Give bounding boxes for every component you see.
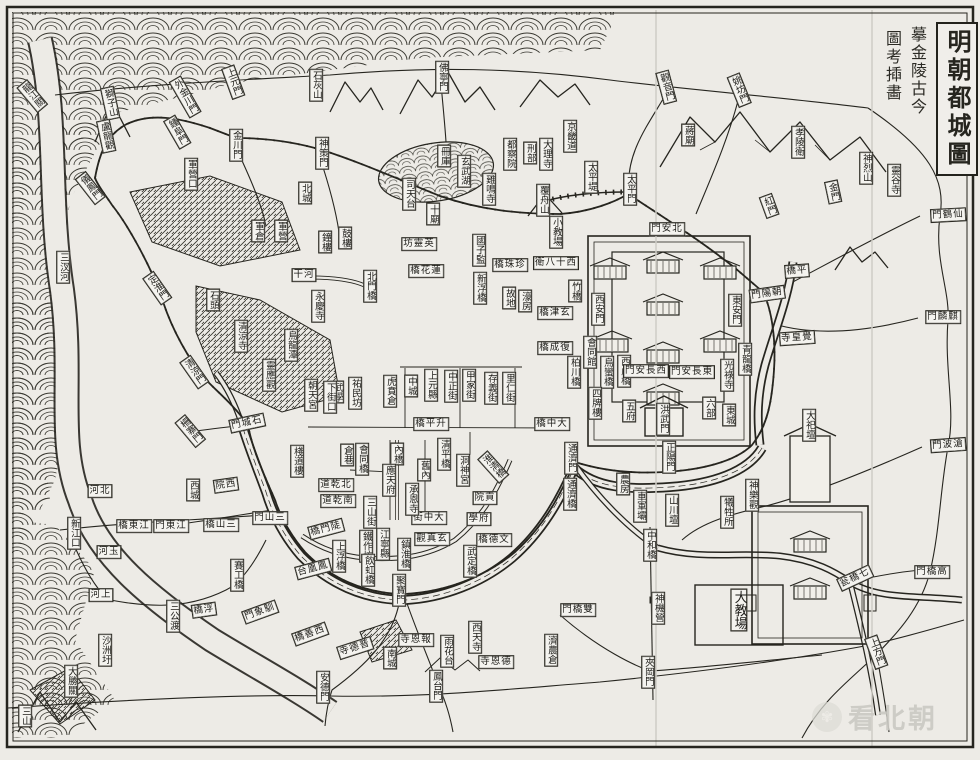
- map-label: 神樂觀: [745, 479, 759, 512]
- map-label: 存義街: [484, 372, 498, 405]
- map-label: 河玉: [96, 545, 121, 559]
- map-label: 中正街: [444, 370, 458, 403]
- map-label: 農房: [616, 473, 630, 496]
- map-label: 門橋雙: [560, 603, 596, 617]
- map-label: 學府: [466, 512, 491, 526]
- map-label: 三山: [18, 705, 32, 728]
- map-title-note-left: 圖考揷畵: [880, 30, 904, 130]
- map-label: 濠房: [518, 290, 532, 313]
- map-label: 觀音門: [655, 70, 677, 105]
- map-label: 門山三: [252, 511, 288, 525]
- map-label: 洪武門: [656, 403, 670, 436]
- map-label: 道乾北: [318, 478, 354, 492]
- map-label: 橋門陡: [307, 518, 345, 540]
- watermark-logo-icon: ✾: [812, 702, 842, 732]
- map-label: 京畿道: [563, 120, 577, 153]
- map-label: 神策門: [315, 137, 329, 170]
- map-label: 軍營口: [184, 158, 198, 191]
- map-label: 門波滄: [930, 437, 966, 453]
- map-label: 東安門: [728, 294, 742, 327]
- map-label: 大祀壇: [802, 409, 816, 442]
- map-label: 橋平: [784, 263, 810, 278]
- map-label: 門象馴: [241, 599, 279, 624]
- map-label: 飲虹橋: [361, 554, 375, 587]
- map-label: 司天台: [402, 178, 416, 211]
- map-label: 橋花蓮: [408, 264, 444, 278]
- map-label: 江寧縣: [376, 528, 390, 561]
- map-label: 橋東江: [116, 519, 152, 533]
- map-label: 橋中大: [534, 417, 570, 431]
- map-label: 應天府: [382, 464, 396, 497]
- map-label: 西天寺: [468, 621, 482, 654]
- map-label: 橋山三: [203, 518, 239, 532]
- map-label: 四牌樓: [588, 387, 602, 420]
- map-label: 門安長西: [623, 364, 669, 378]
- map-label: 上元縣: [424, 369, 438, 402]
- map-label: 靈應觀: [262, 359, 276, 392]
- map-label: 寺恩報: [398, 633, 434, 647]
- map-label: 中和橋: [643, 529, 657, 562]
- map-label: 小教場: [549, 216, 563, 249]
- map-label: 沙洲圩: [98, 634, 112, 667]
- map-label: 正陽門: [662, 441, 676, 474]
- map-label: 蔣廟: [681, 124, 695, 147]
- map-label: 門麟麒: [925, 310, 961, 324]
- map-label: 瓮橋七: [836, 564, 874, 591]
- map-label: 會同館: [583, 336, 597, 369]
- map-label: 衛八十西: [533, 256, 579, 270]
- map-label: 安德門: [316, 671, 330, 704]
- map-label: 冊庫: [437, 145, 451, 168]
- map-label: 朝天宮: [304, 379, 318, 412]
- map-label: 門鶴仙: [930, 207, 966, 223]
- map-label: 北城: [298, 182, 312, 205]
- map-label: 上浮橋: [332, 540, 346, 573]
- map-label: 軍營: [274, 220, 288, 243]
- map-label: 橋珠珍: [492, 258, 528, 272]
- map-label: 祐民坊: [348, 377, 362, 410]
- map-label: 門城石: [228, 413, 266, 434]
- map-label: 刑部: [523, 142, 537, 165]
- map-label: 國子監: [472, 234, 486, 267]
- map-label: 上元門: [221, 64, 245, 99]
- map-label: 鳳台門: [429, 670, 443, 703]
- map-label: 柵寨門: [174, 414, 205, 448]
- map-label: 柏川橋: [567, 356, 581, 389]
- map-title-note-right: 摹金陵古今: [905, 26, 929, 146]
- map-label: 清涼寺: [234, 320, 248, 353]
- map-label: 靈谷寺: [887, 164, 901, 197]
- map-label: 倉巷: [340, 444, 354, 467]
- map-label: 門橋高: [914, 565, 950, 579]
- map-label: 賽工橋: [230, 559, 244, 592]
- map-label: 神機營: [651, 592, 665, 625]
- map-label: 門東江: [153, 519, 189, 533]
- map-label: 寺恩德: [478, 655, 514, 669]
- map-label: 軍倉: [251, 220, 265, 243]
- map-label: 洞神宮: [456, 454, 470, 487]
- map-label: 會同橋: [355, 443, 369, 476]
- map-label: 鼓樓: [338, 227, 352, 250]
- map-label: 大勝關: [64, 665, 78, 698]
- map-label: 聚寶門: [392, 574, 406, 607]
- map-label: 十廟: [426, 203, 440, 226]
- map-label: 三汊河: [56, 251, 70, 284]
- map-label: 烏蠻橋: [600, 356, 614, 389]
- map-label: 金川門: [229, 129, 243, 162]
- map-label: 佛寧門: [435, 61, 449, 94]
- map-label: 河上: [88, 588, 113, 602]
- map-label: 定淮門: [142, 271, 172, 305]
- map-label: 門安北: [649, 222, 685, 236]
- map-label: 下街口: [323, 381, 337, 414]
- map-label: 淮清橋: [477, 450, 509, 483]
- map-label: 通濟門: [564, 442, 578, 475]
- map-label: 大理寺: [539, 138, 553, 171]
- map-label: 濟農倉: [544, 634, 558, 667]
- map-label: 棧道樓: [290, 445, 304, 478]
- map-label: 寺德普: [336, 636, 374, 660]
- map-label: 新浮橋: [473, 272, 487, 305]
- map-label: 儀鳳門: [75, 171, 106, 205]
- map-label: 五府: [622, 400, 636, 423]
- map-label: 觀真玄: [414, 532, 450, 546]
- map-label: 都察院: [503, 138, 517, 171]
- map-label: 神烈山: [859, 152, 873, 185]
- map-label: 竹橋: [568, 280, 582, 303]
- map-label: 烏龍潭: [284, 329, 298, 362]
- map-label: 三山街: [363, 496, 377, 529]
- map-label: 東城: [722, 404, 736, 427]
- map-label: 橋德文: [476, 533, 512, 547]
- map-label: 門陽朝: [748, 285, 785, 303]
- map-label: 永慶寺: [311, 290, 325, 323]
- map-label: 橋平升: [413, 417, 449, 431]
- map-label: 太平門: [623, 173, 637, 206]
- map-label: 石頭: [206, 289, 220, 312]
- map-label: 里仁街: [502, 372, 516, 405]
- map-label: 三公渡: [166, 600, 180, 633]
- map-label: 干河: [291, 268, 316, 282]
- map-label: 武定橋: [463, 545, 477, 578]
- map-label: 石灰山: [309, 69, 323, 102]
- map-label: 夾岡門: [641, 656, 655, 689]
- map-label: 橋成復: [537, 341, 573, 355]
- map-label: 紅門: [759, 193, 780, 219]
- historic-map-page: 龍江關獅子山盧龍觀外金川門鍾阜門儀鳳門上元門金川門軍營口石灰山神策門佛寧門觀音門…: [0, 0, 980, 760]
- map-label: 金門: [824, 179, 842, 204]
- map-label: 大教場: [730, 589, 747, 632]
- map-label: 橋津玄: [537, 306, 573, 320]
- map-label: 內橋: [390, 443, 404, 466]
- map-label: 橋善西: [291, 621, 329, 646]
- map-label: 鎮淮橋: [397, 538, 411, 571]
- map-label: 河北: [87, 484, 112, 498]
- map-label: 台凰鳳: [294, 558, 332, 580]
- map-label: 院西: [213, 476, 240, 493]
- map-label: 西城: [186, 479, 200, 502]
- map-label: 通濟橋: [563, 478, 577, 511]
- watermark-text: 看北朝: [848, 697, 938, 736]
- map-label: 太平堤: [584, 161, 598, 194]
- map-label: 故地: [502, 287, 516, 310]
- map-label: 覆舟山: [536, 184, 550, 217]
- map-label: 寺皇覺: [779, 330, 815, 346]
- map-label: 舊內: [417, 459, 431, 482]
- map-title: 明朝都城圖: [936, 22, 978, 176]
- map-label: 清平橋: [437, 438, 451, 471]
- map-label: 道乾南: [320, 494, 356, 508]
- map-label: 虎賁倉: [383, 375, 397, 408]
- map-labels-layer: 龍江關獅子山盧龍觀外金川門鍾阜門儀鳳門上元門金川門軍營口石灰山神策門佛寧門觀音門…: [0, 0, 980, 760]
- map-label: 上方門: [864, 634, 888, 669]
- map-label: 龍江關: [16, 79, 47, 113]
- watermark: ✾ 看北朝: [812, 697, 938, 736]
- map-label: 院貢: [472, 491, 497, 505]
- map-label: 車軍壩: [633, 490, 647, 523]
- map-label: 西安門: [591, 293, 605, 326]
- map-label: 光祿寺: [720, 359, 734, 392]
- map-label: 外金川門: [169, 75, 202, 118]
- map-label: 孝陵衛: [791, 126, 805, 159]
- map-label: 清涼門: [179, 355, 209, 389]
- map-label: 雨花台: [440, 635, 454, 668]
- map-label: 犧牲所: [720, 496, 734, 529]
- map-label: 坊靈英: [401, 237, 437, 251]
- map-label: 盧龍觀: [96, 119, 116, 154]
- map-label: 山川壇: [665, 494, 679, 527]
- map-label: 雞鳴寺: [482, 173, 496, 206]
- map-label: 承恩寺: [405, 483, 419, 516]
- map-label: 中城: [404, 375, 418, 398]
- map-label: 姚坊門: [727, 72, 752, 107]
- map-label: 南城: [383, 647, 397, 670]
- map-label: 甲家街: [462, 369, 476, 402]
- map-label: 玄武湖: [457, 155, 471, 188]
- map-label: 橋浮: [191, 601, 218, 618]
- map-label: 鐘樓: [318, 231, 332, 254]
- map-label: 鍾阜門: [163, 115, 191, 150]
- map-label: 新江口: [67, 517, 81, 550]
- map-label: 六部: [702, 397, 716, 420]
- map-label: 青龍橋: [738, 343, 752, 376]
- map-label: 獅子山: [100, 86, 120, 121]
- map-label: 門安長東: [669, 365, 715, 379]
- map-label: 北門橋: [363, 270, 377, 303]
